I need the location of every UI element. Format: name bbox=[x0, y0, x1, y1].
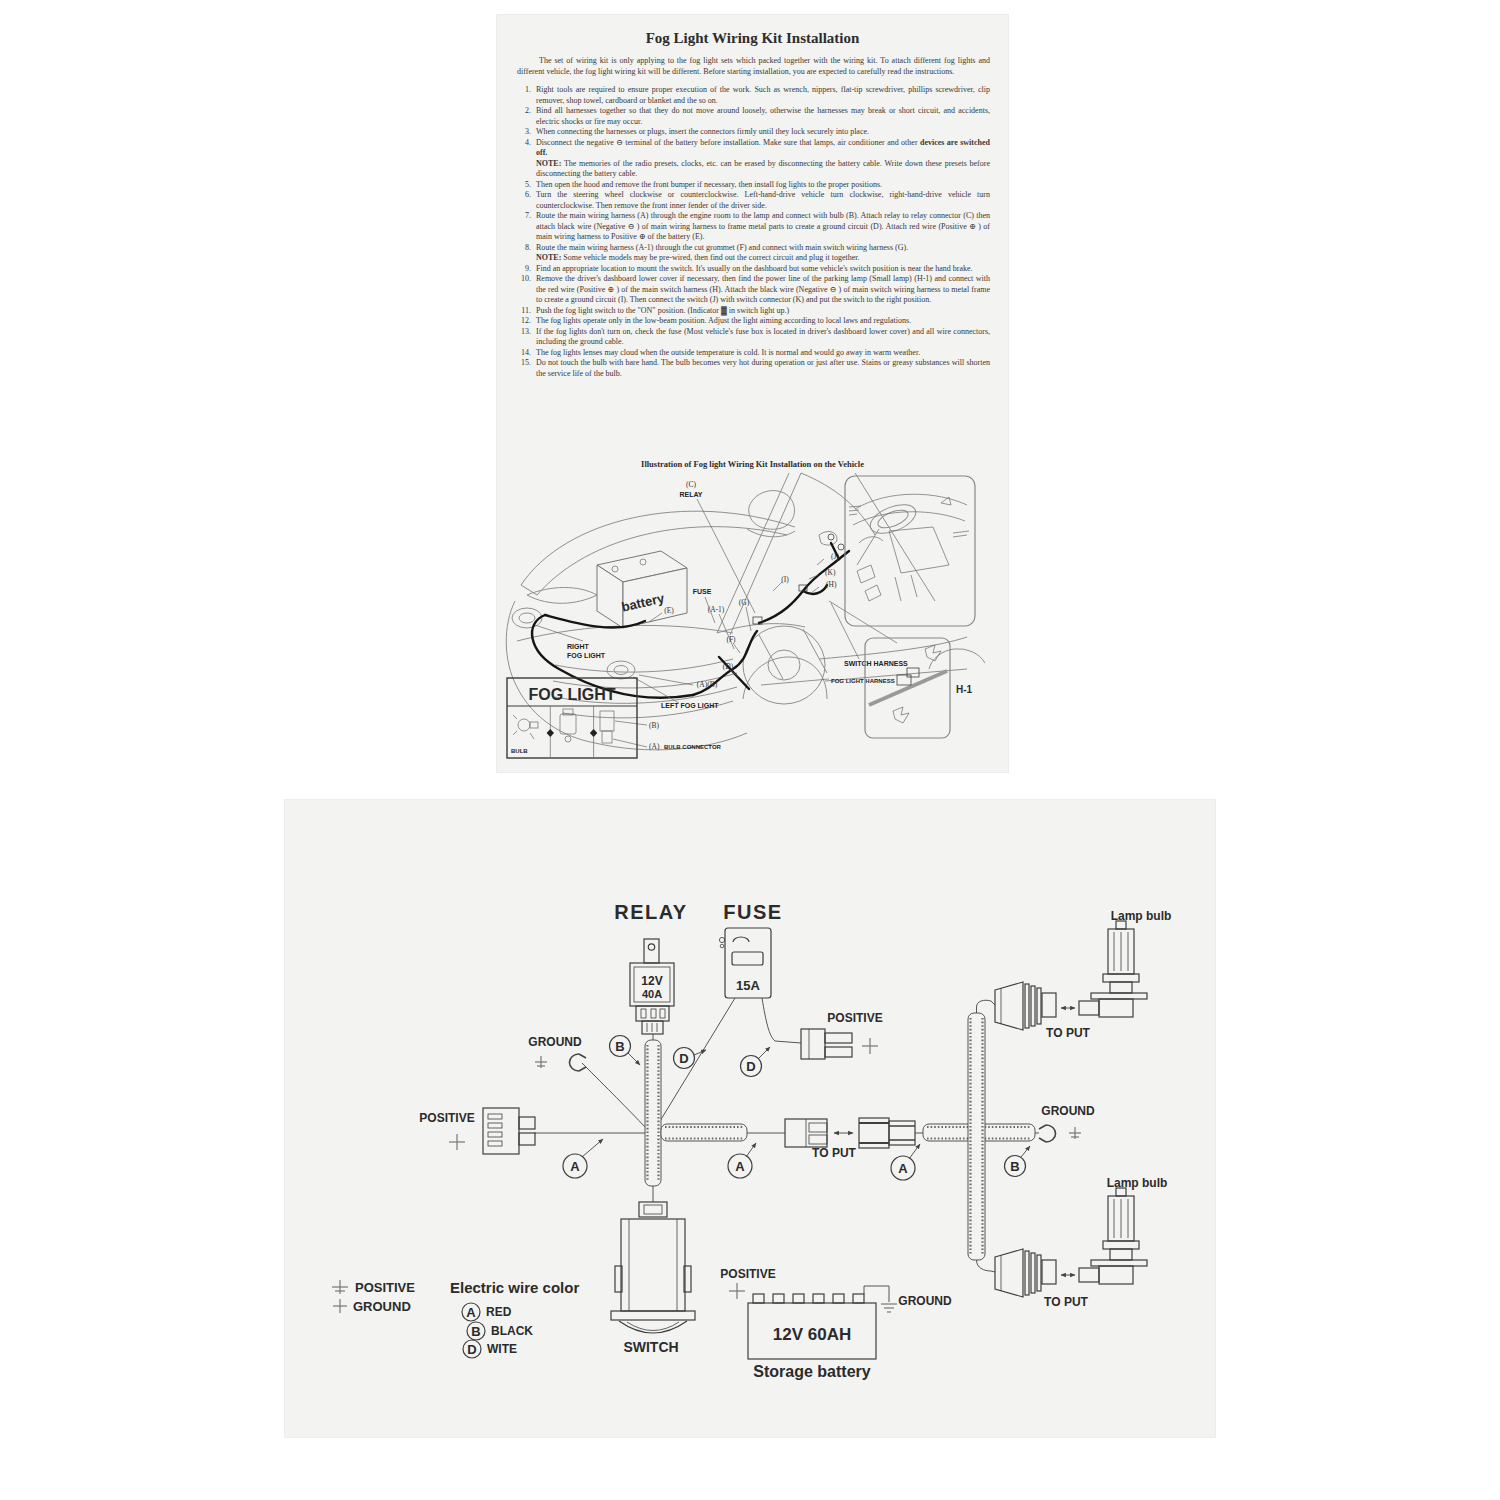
wire-color-title: Electric wire color bbox=[450, 1279, 579, 1296]
switch-component: SWITCH bbox=[611, 1202, 695, 1355]
wire-tag-a3: A bbox=[891, 1144, 920, 1180]
mid-connector-pair: TO PUT bbox=[785, 1118, 915, 1160]
instruction-item: 2.Bind all harnesses together so that th… bbox=[517, 106, 990, 127]
corrugated-tube-main bbox=[661, 1124, 747, 1141]
relay-volts: 12V bbox=[641, 974, 662, 988]
switch-label: SWITCH bbox=[623, 1339, 678, 1355]
wire-tag-d1: D bbox=[674, 1048, 707, 1069]
ground-symbol-icon bbox=[535, 1056, 547, 1068]
fuse-title: FUSE bbox=[723, 901, 782, 923]
label-b: (B) bbox=[649, 721, 660, 730]
ground-symbol-icon bbox=[332, 1280, 348, 1294]
lamp-bulb-bottom-label: Lamp bulb bbox=[1107, 1176, 1168, 1190]
svg-text:BLACK: BLACK bbox=[491, 1324, 533, 1338]
switch-harness-label: SWITCH HARNESS bbox=[844, 660, 908, 667]
label-i: (I) bbox=[781, 575, 789, 584]
wire-color-entry: B BLACK bbox=[467, 1322, 533, 1340]
bulb-label: BULB bbox=[511, 748, 528, 754]
svg-text:WITE: WITE bbox=[487, 1342, 517, 1356]
svg-text:A: A bbox=[466, 1305, 476, 1320]
relay-component: RELAY 12V 40A bbox=[614, 901, 687, 1034]
label-a1: (A-1) bbox=[708, 605, 725, 614]
instruction-item: 1.Right tools are required to ensure pro… bbox=[517, 85, 990, 106]
svg-text:B: B bbox=[1010, 1159, 1019, 1174]
label-h: (H) bbox=[826, 580, 837, 589]
plus-icon bbox=[449, 1134, 465, 1150]
ground-right-label: GROUND bbox=[1041, 1104, 1095, 1118]
wire-tag-d2: D bbox=[741, 1047, 771, 1077]
svg-text:A: A bbox=[898, 1161, 908, 1176]
battery-box: battery bbox=[597, 551, 687, 628]
battery-rating: 12V 60AH bbox=[773, 1325, 851, 1344]
right-fog-light-label-2: FOG LIGHT bbox=[567, 652, 606, 659]
lamp-bulb-assembly bbox=[995, 921, 1147, 1030]
wiring-diagram-sheet: RELAY 12V 40A FUSE 15A POS bbox=[285, 800, 1215, 1437]
vehicle-illustration: battery (C) bbox=[497, 473, 1008, 768]
instruction-item: 11.Push the fog light switch to the "ON"… bbox=[517, 306, 990, 317]
fuse-amps: 15A bbox=[736, 978, 760, 993]
instruction-item: 14.The fog lights lenses may cloud when … bbox=[517, 348, 990, 359]
wire-tag-b1: B bbox=[610, 1036, 641, 1066]
ground-top-label: GROUND bbox=[528, 1035, 582, 1049]
instruction-item: 6.Turn the steering wheel clockwise or c… bbox=[517, 190, 990, 211]
positive-connector-left: POSITIVE bbox=[419, 1108, 535, 1154]
legend: POSITIVE GROUND Electric wire color A RE… bbox=[332, 1279, 579, 1358]
label-d: (D) bbox=[723, 662, 734, 671]
ground-right: GROUND bbox=[1039, 1104, 1095, 1142]
positive-top-label: POSITIVE bbox=[827, 1011, 882, 1025]
positive-left-label: POSITIVE bbox=[419, 1111, 474, 1125]
to-put-top-label: TO PUT bbox=[1046, 1026, 1090, 1040]
positive-battery-label: POSITIVE bbox=[720, 1267, 775, 1281]
label-k: (K) bbox=[825, 568, 836, 577]
car-outline bbox=[506, 473, 985, 750]
instruction-item: 10.Remove the driver's dashboard lower c… bbox=[517, 274, 990, 306]
battery-caption: Storage battery bbox=[753, 1363, 870, 1380]
svg-text:B: B bbox=[471, 1324, 480, 1339]
ground-battery-label: GROUND bbox=[898, 1294, 952, 1308]
legend-ground-label: GROUND bbox=[353, 1299, 411, 1314]
svg-text:A: A bbox=[570, 1159, 580, 1174]
to-put-bottom-label: TO PUT bbox=[1044, 1295, 1088, 1309]
bulb-connector-label: BULB CONNECTOR bbox=[664, 744, 722, 750]
fuse-component: FUSE 15A bbox=[719, 901, 782, 998]
fog-light-harness-label: FOG LIGHT HARNESS bbox=[831, 678, 895, 684]
right-fog-light-label-1: RIGHT bbox=[567, 643, 590, 650]
label-g: (G) bbox=[739, 598, 750, 607]
positive-connector-top: POSITIVE bbox=[801, 1011, 883, 1059]
instruction-item: 9.Find an appropriate location to mount … bbox=[517, 264, 990, 275]
h1-label: H-1 bbox=[956, 684, 973, 695]
instruction-item: 13.If the fog lights don't turn on, chec… bbox=[517, 327, 990, 348]
svg-text:A: A bbox=[735, 1159, 745, 1174]
note: NOTE: The memories of the radio presets,… bbox=[536, 159, 990, 180]
intro-paragraph: The set of wiring kit is only applying t… bbox=[517, 56, 990, 77]
lamp-bulb-top-label: Lamp bulb bbox=[1111, 909, 1172, 923]
instruction-item: 15.Do not touch the bulb with bare hand.… bbox=[517, 358, 990, 379]
plus-icon bbox=[862, 1038, 878, 1054]
instruction-item: 4.Disconnect the negative ⊖ terminal of … bbox=[517, 138, 990, 180]
svg-text:D: D bbox=[746, 1059, 755, 1074]
ground-top: GROUND bbox=[528, 1035, 586, 1071]
label-f: (F) bbox=[726, 635, 736, 644]
wire-color-entry: D WITE bbox=[463, 1340, 517, 1358]
relay-amps: 40A bbox=[642, 988, 662, 1000]
note: NOTE: Some vehicle models may be pre-wir… bbox=[536, 253, 990, 264]
illustration-caption: Illustration of Fog light Wiring Kit Ins… bbox=[497, 459, 1008, 469]
plus-icon bbox=[333, 1299, 347, 1313]
wiring-diagram: RELAY 12V 40A FUSE 15A POS bbox=[285, 800, 1215, 1437]
label-relay-connector-c: (C) bbox=[686, 480, 697, 489]
wire-tag-b2: B bbox=[1005, 1146, 1031, 1177]
page-title: Fog Light Wiring Kit Installation bbox=[497, 15, 1008, 47]
wiring-harness bbox=[532, 534, 849, 698]
legend-positive-label: POSITIVE bbox=[355, 1280, 415, 1295]
instruction-body: The set of wiring kit is only applying t… bbox=[497, 47, 1008, 379]
ground-symbol-icon bbox=[881, 1304, 897, 1312]
instruction-item: 8.Route the main wiring harness (A-1) th… bbox=[517, 243, 990, 264]
left-fog-light-label: LEFT FOG LIGHT bbox=[661, 702, 719, 709]
svg-text:RED: RED bbox=[486, 1305, 512, 1319]
fuse-label: FUSE bbox=[693, 588, 712, 595]
svg-text:B: B bbox=[615, 1039, 624, 1054]
instruction-item: 12.The fog lights operate only in the lo… bbox=[517, 316, 990, 327]
svg-text:D: D bbox=[679, 1051, 688, 1066]
label-e: (E) bbox=[664, 606, 674, 615]
instruction-sheet: Fog Light Wiring Kit Installation The se… bbox=[497, 15, 1008, 772]
label-j: (J) bbox=[831, 552, 839, 561]
instruction-item: 7.Route the main wiring harness (A) thro… bbox=[517, 211, 990, 243]
fog-light-legend-box: FOG LIGHT BULB (B) (A) BULB CONNECTOR bbox=[507, 678, 722, 758]
wire-color-entry: A RED bbox=[462, 1303, 512, 1321]
relay-title: RELAY bbox=[614, 901, 687, 923]
ground-symbol-icon bbox=[1069, 1127, 1081, 1139]
svg-text:D: D bbox=[467, 1342, 476, 1357]
label-a: (A) bbox=[649, 742, 660, 751]
corrugated-tube-right-vertical bbox=[968, 1013, 985, 1260]
wire-tag-a1: A bbox=[563, 1139, 603, 1178]
label-axb: (A)(B) bbox=[697, 680, 718, 689]
fog-light-box-title: FOG LIGHT bbox=[528, 686, 615, 703]
fork-terminal-icon bbox=[569, 1054, 586, 1071]
leader-lines bbox=[535, 499, 897, 747]
to-put-mid-label: TO PUT bbox=[812, 1146, 856, 1160]
wire-tag-a2: A bbox=[728, 1143, 756, 1178]
corrugated-tube-relay bbox=[645, 1040, 661, 1186]
instruction-item: 3.When connecting the harnesses or plugs… bbox=[517, 127, 990, 138]
relay-label: RELAY bbox=[679, 491, 702, 498]
storage-battery: POSITIVE 12V 60AH Storage battery GROUND bbox=[720, 1267, 952, 1380]
fork-terminal-icon bbox=[1039, 1125, 1056, 1142]
dashboard-inset bbox=[845, 476, 975, 626]
instruction-item: 5.Then open the hood and remove the fron… bbox=[517, 180, 990, 191]
plus-icon bbox=[729, 1283, 745, 1299]
